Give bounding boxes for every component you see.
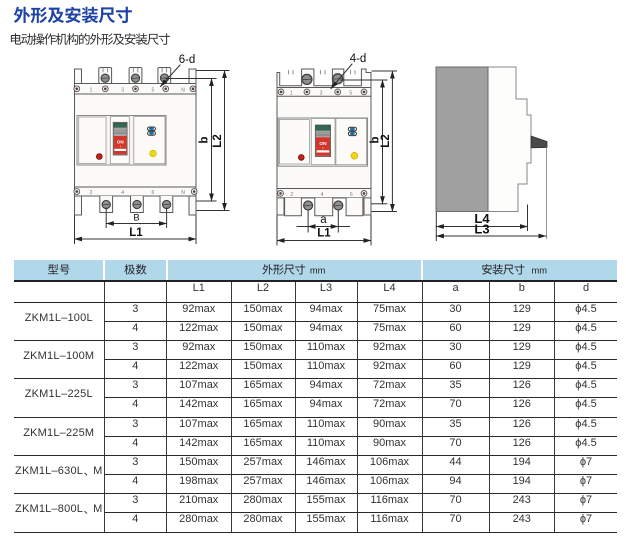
svg-text:mm: mm [310,265,326,275]
svg-text:mm: mm [532,265,548,275]
